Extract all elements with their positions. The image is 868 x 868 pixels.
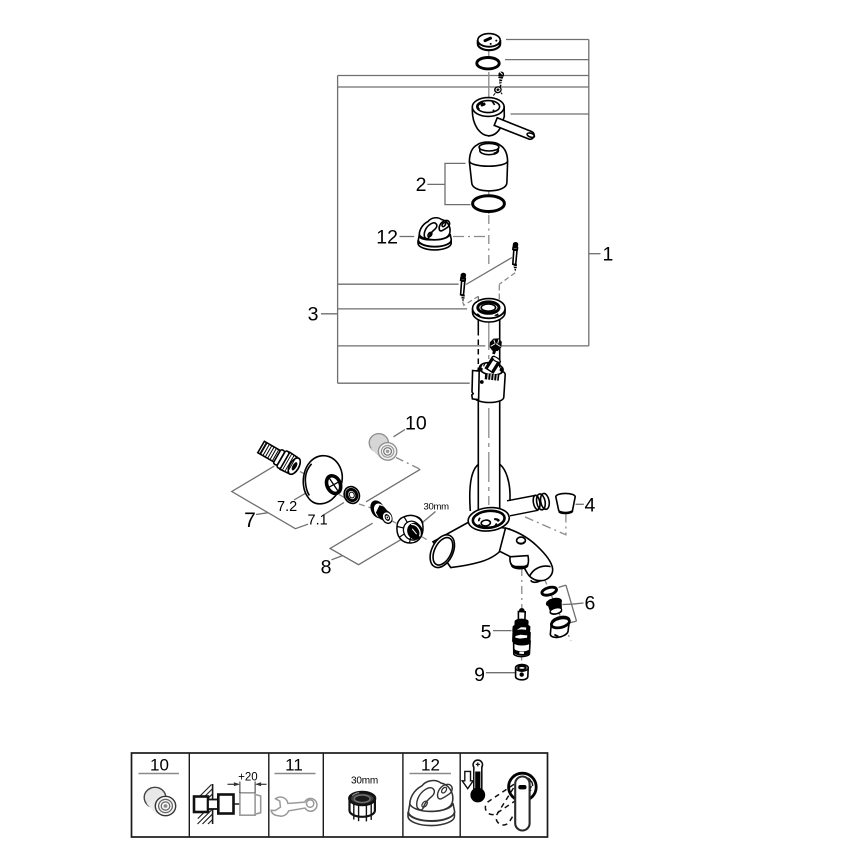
svg-text:4: 4 <box>585 495 596 517</box>
svg-text:10: 10 <box>150 756 169 775</box>
svg-text:3: 3 <box>308 304 319 326</box>
svg-text:1: 1 <box>603 244 614 266</box>
svg-text:2: 2 <box>416 174 427 196</box>
svg-text:9: 9 <box>474 664 485 686</box>
svg-text:7: 7 <box>244 509 256 532</box>
svg-text:12: 12 <box>421 756 440 775</box>
svg-text:5: 5 <box>481 622 492 644</box>
svg-text:30mm: 30mm <box>424 502 450 513</box>
svg-text:11: 11 <box>285 756 303 775</box>
svg-text:30mm: 30mm <box>351 776 378 787</box>
svg-text:10: 10 <box>405 413 427 435</box>
svg-text:7.2: 7.2 <box>277 499 297 515</box>
svg-text:6: 6 <box>585 593 596 615</box>
svg-text:12: 12 <box>376 227 398 249</box>
svg-text:7.1: 7.1 <box>308 513 328 529</box>
svg-text:8: 8 <box>321 557 332 579</box>
